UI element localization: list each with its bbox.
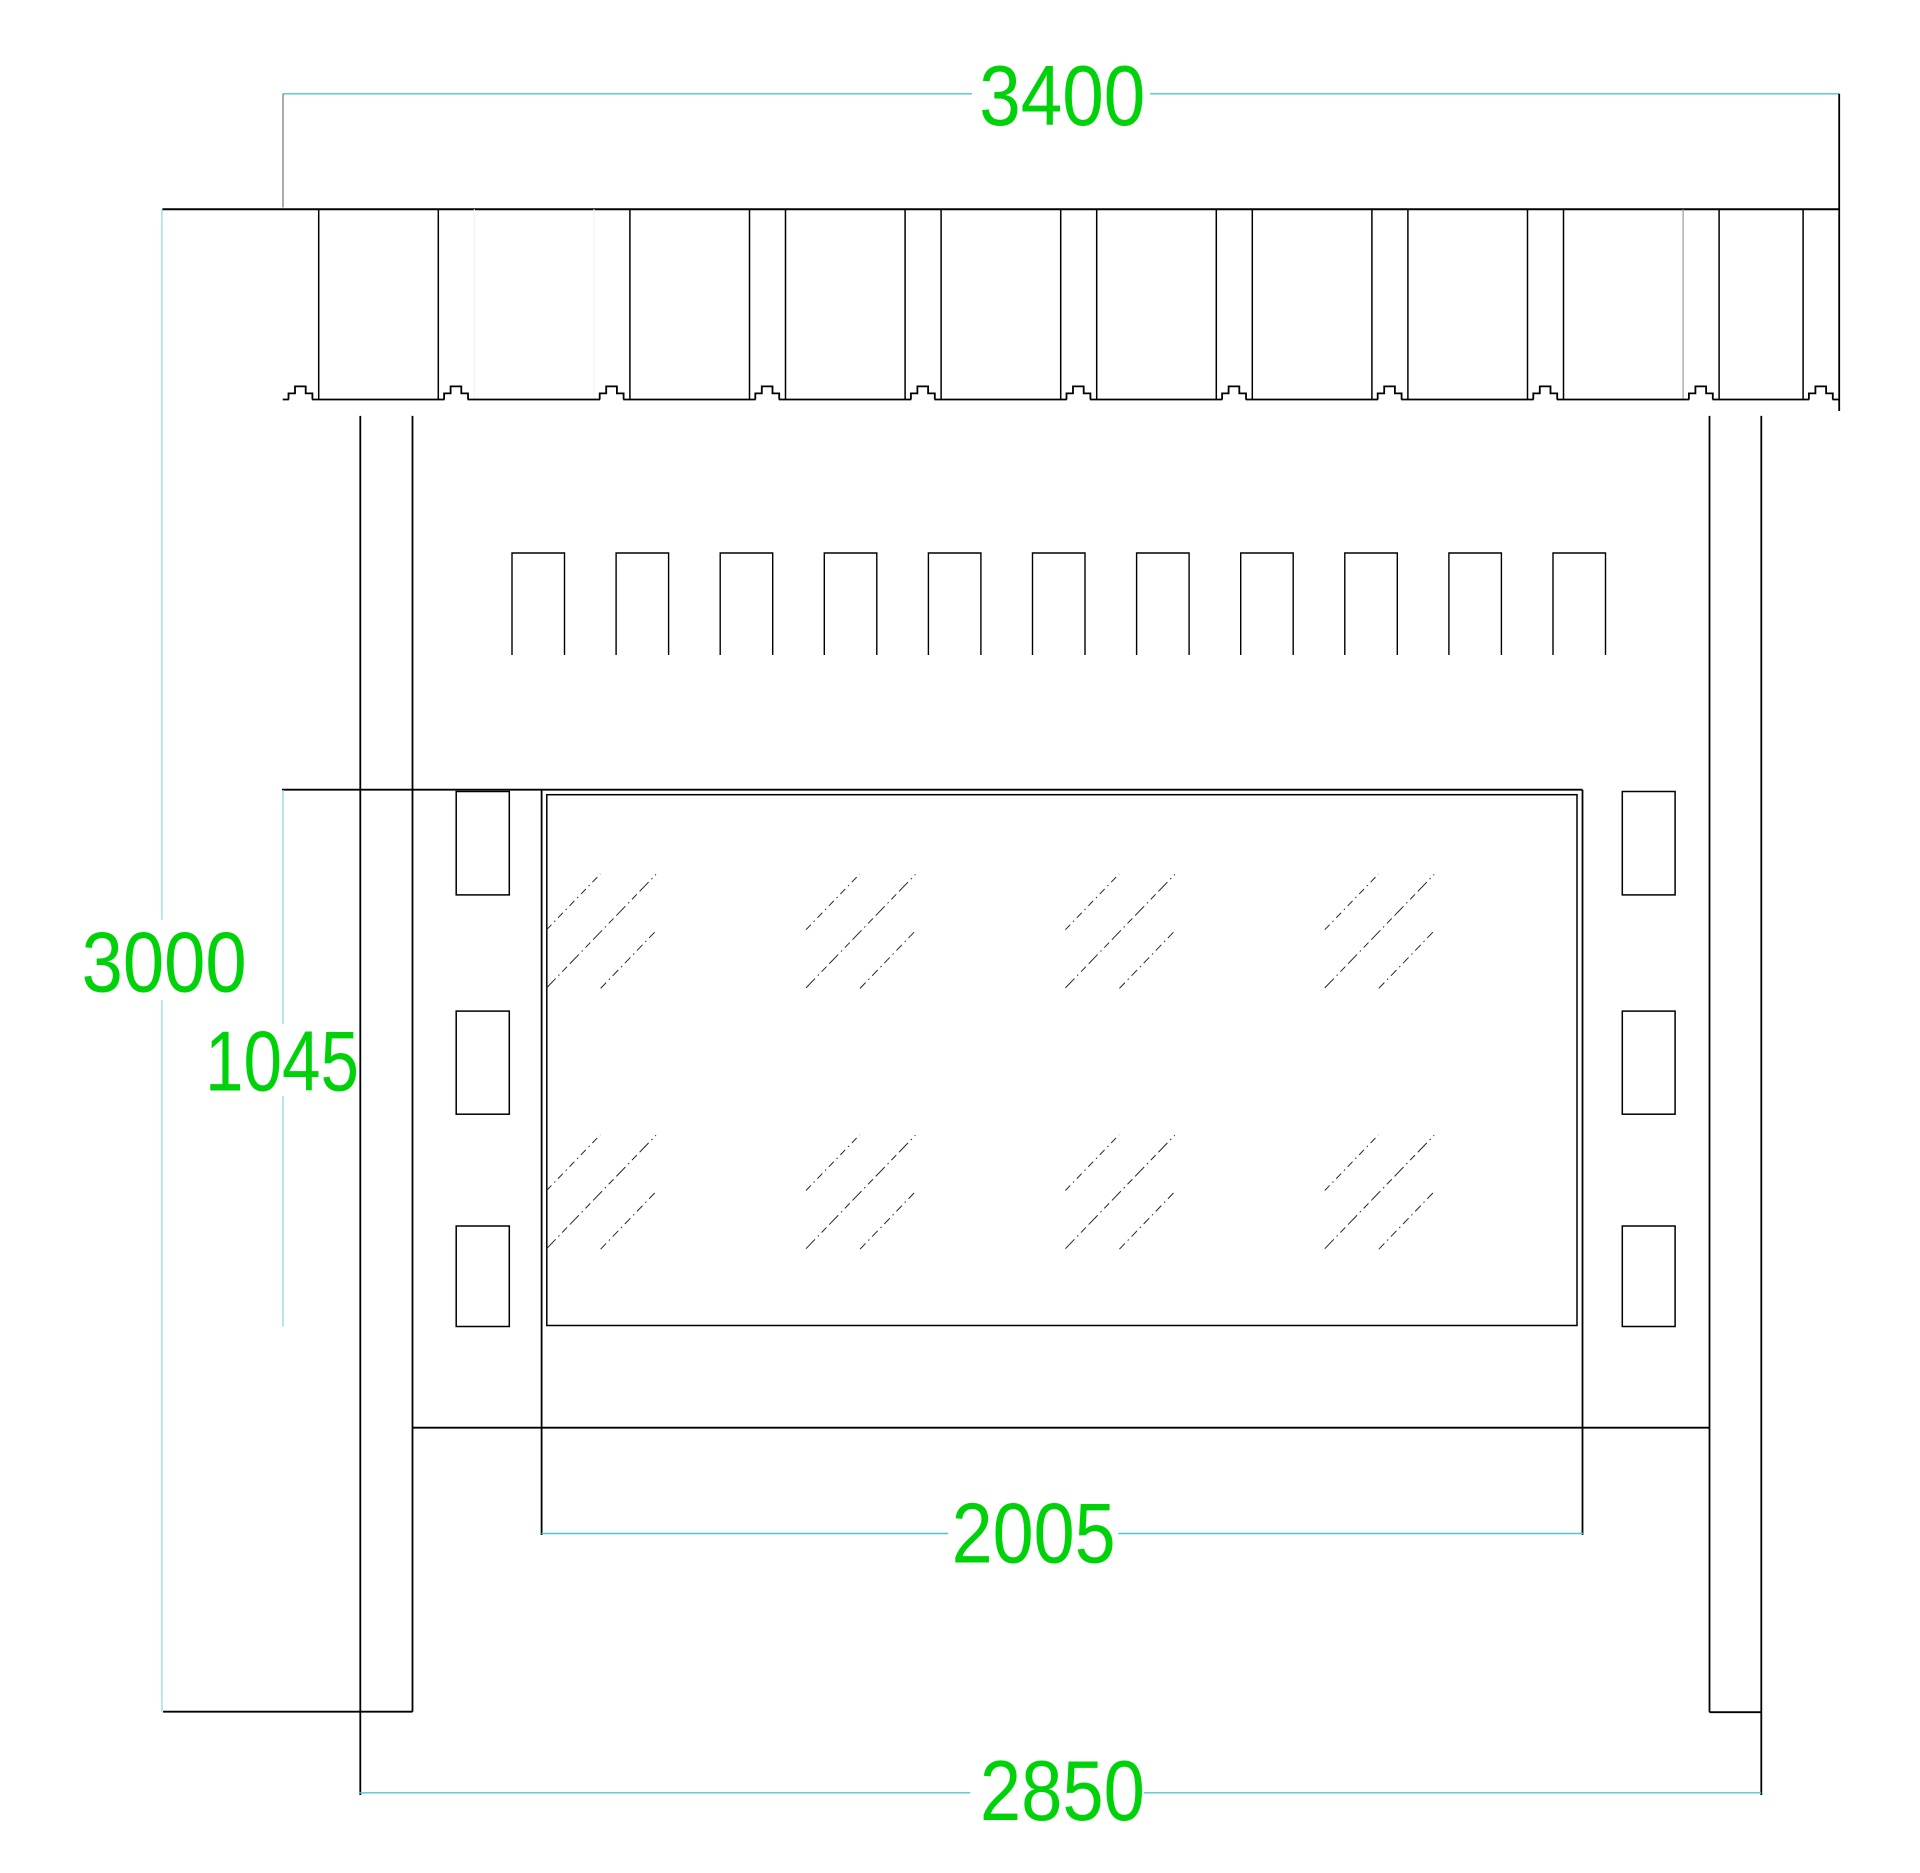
svg-text:2850: 2850 (980, 1744, 1145, 1839)
svg-text:2005: 2005 (952, 1486, 1116, 1581)
svg-text:1045: 1045 (205, 1014, 359, 1109)
svg-text:3400: 3400 (979, 49, 1145, 144)
svg-text:3000: 3000 (82, 916, 247, 1011)
